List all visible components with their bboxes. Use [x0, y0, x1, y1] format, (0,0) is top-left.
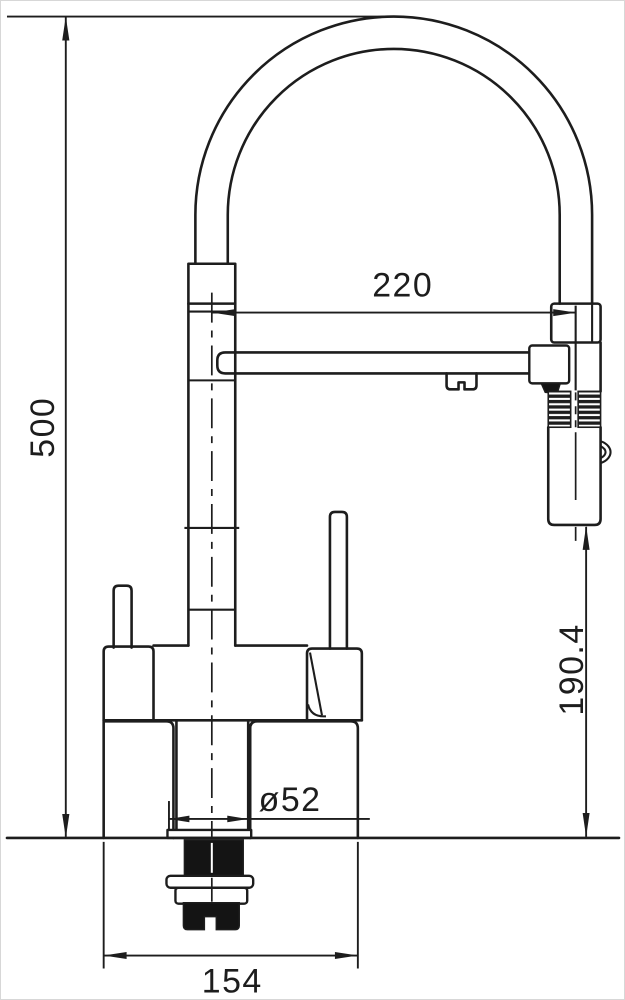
left-handle — [114, 586, 132, 648]
arm-end-block — [529, 345, 569, 383]
arm-clip — [447, 373, 477, 389]
dim-hole-diameter-value: ø52 — [259, 781, 322, 819]
faucet-technical-drawing: 500 220 190.4 ø52 154 — [0, 0, 625, 1000]
mounting-hardware — [166, 830, 253, 930]
right-handle-lever-line — [310, 653, 322, 716]
drawing-canvas: 500 220 190.4 ø52 154 — [1, 1, 624, 999]
dimension-head-to-counter: 190.4 — [553, 526, 591, 837]
pedestal-right — [250, 721, 358, 838]
pedestal-left — [104, 721, 174, 838]
spout-arch — [195, 17, 592, 304]
dim-head-to-counter-value: 190.4 — [553, 623, 591, 715]
dimension-hole-diameter: ø52 — [169, 781, 370, 831]
dim-body-width-value: 154 — [202, 962, 263, 999]
dim-spout-reach-value: 220 — [372, 267, 433, 305]
hose-fitting — [183, 903, 239, 930]
spray-head-grip-ribs-right — [578, 391, 600, 427]
dimension-overall-height: 500 — [7, 17, 399, 838]
dimension-spout-reach: 220 — [212, 267, 576, 316]
right-handle — [330, 512, 347, 649]
spray-head-body — [548, 427, 600, 525]
spray-head — [548, 304, 610, 541]
body-left-block — [104, 647, 154, 721]
threaded-shank — [184, 840, 243, 876]
faucet-body — [104, 512, 362, 838]
dim-overall-height-value: 500 — [24, 397, 62, 458]
mounting-washer — [166, 876, 253, 888]
spout-arm — [217, 345, 569, 393]
spray-head-grip-ribs-left — [548, 391, 570, 427]
